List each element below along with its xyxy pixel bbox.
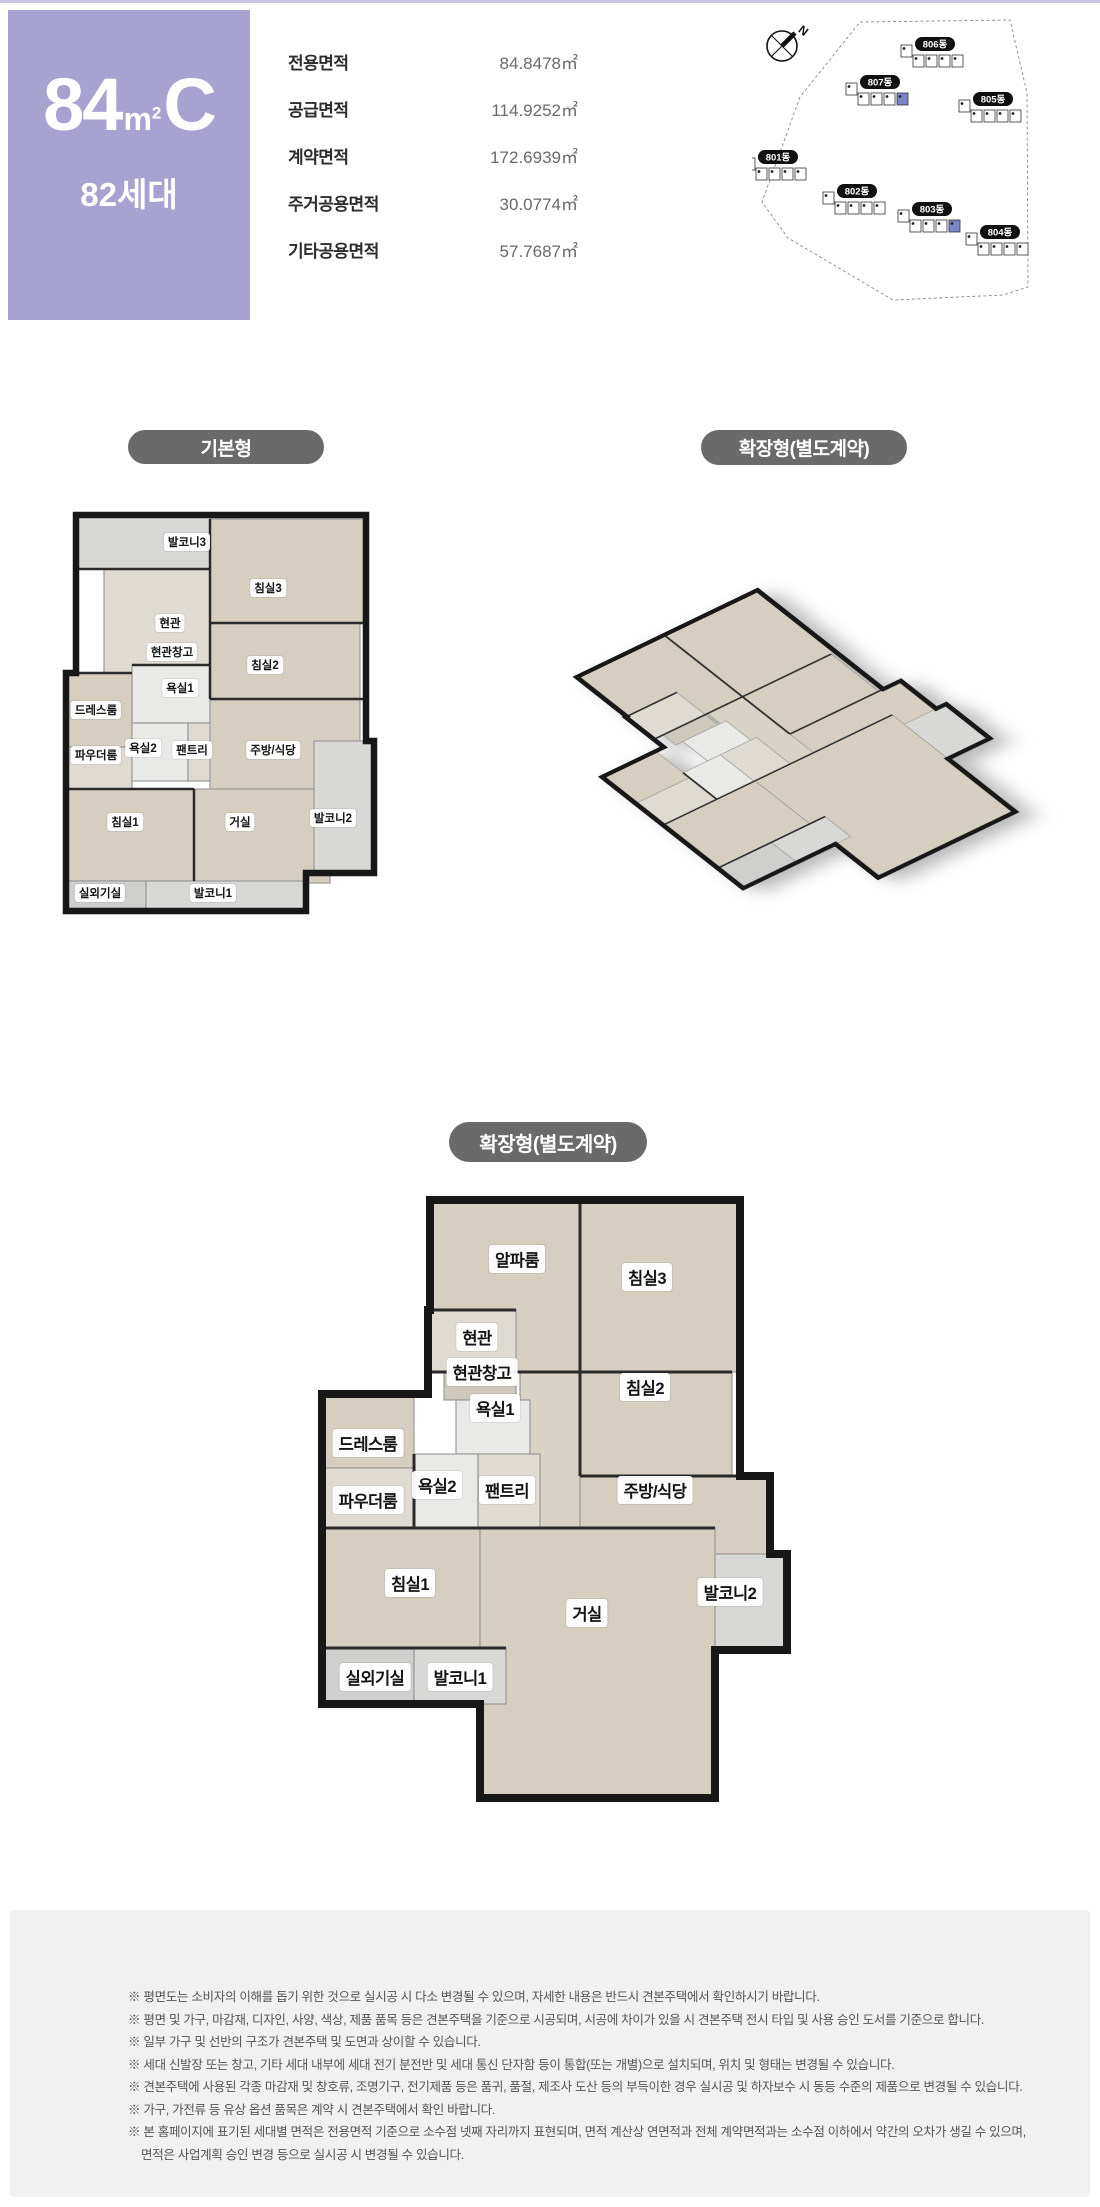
- note-line: ※ 평면 및 가구, 마감재, 디자인, 사양, 색상, 제품 품목 등은 견본…: [128, 2009, 1050, 2032]
- room-label: 욕실2: [412, 1471, 462, 1499]
- room-label: 주방/식당: [618, 1476, 693, 1504]
- area-value: 84.8478㎡: [500, 49, 578, 74]
- svg-text:802동: 802동: [845, 187, 870, 198]
- site-boundary: [762, 20, 1028, 300]
- area-row: 주거공용면적 30.0774㎡: [288, 187, 578, 217]
- room-label: 주방/식당: [246, 741, 300, 759]
- area-row: 계약면적 172.6939㎡: [288, 140, 578, 170]
- room-label: 드레스룸: [71, 701, 121, 719]
- area-value: 172.6939㎡: [490, 143, 578, 168]
- badge-extended-type-2: 확장형(별도계약): [449, 1122, 647, 1162]
- room-label: 실외기실: [340, 1663, 411, 1691]
- room-label: 침실3: [622, 1263, 672, 1291]
- room-label: 현관창고: [147, 643, 197, 661]
- note-line: ※ 세대 신발장 또는 창고, 기타 세대 내부에 세대 전기 분전반 및 세대…: [128, 2054, 1050, 2077]
- badge-extended-type: 확장형(별도계약): [701, 430, 907, 465]
- room-label: 발코니1: [190, 884, 236, 902]
- room-label: 침실1: [385, 1569, 435, 1597]
- area-value: 30.0774㎡: [500, 190, 578, 215]
- svg-text:806동: 806동: [923, 40, 948, 51]
- note-line: ※ 견본주택에 사용된 각종 마감재 및 창호류, 조명기구, 전기제품 등은 …: [128, 2076, 1050, 2099]
- room-label: 발코니1: [428, 1663, 493, 1691]
- room-label: 실외기실: [75, 884, 125, 902]
- households-count: 82세대: [80, 168, 177, 216]
- area-row: 공급면적 114.9252㎡: [288, 93, 578, 123]
- floorplan-extended-3d: [498, 462, 1073, 1037]
- svg-text:801동: 801동: [766, 153, 791, 164]
- room-label: 발코니3: [164, 533, 210, 551]
- area-row: 전용면적 84.8478㎡: [288, 46, 578, 76]
- room-label: 발코니2: [698, 1578, 763, 1606]
- note-line: 면적은 사업계획 승인 변경 등으로 실시공 시 변경될 수 있습니다.: [128, 2144, 1050, 2167]
- site-map: N 801동802동803동804동805동806동807동: [752, 12, 1092, 312]
- room-label: 팬트리: [172, 741, 212, 759]
- north-label: N: [796, 22, 811, 38]
- unit-type-code: 84 m2 C: [43, 68, 215, 142]
- svg-text:807동: 807동: [868, 78, 893, 89]
- floorplan-basic: 발코니3침실3현관현관창고침실2욕실1드레스룸욕실2팬트리파우더룸주방/식당침실…: [60, 505, 380, 915]
- compass-icon: N: [767, 22, 811, 61]
- room-label: 침실1: [107, 813, 143, 831]
- room-label: 현관: [155, 614, 184, 632]
- svg-text:804동: 804동: [988, 228, 1013, 239]
- unit-suffix: C: [163, 68, 214, 142]
- footer-notes: ※ 평면도는 소비자의 이해를 돕기 위한 것으로 실시공 시 다소 변경될 수…: [10, 1910, 1090, 2197]
- room-label: 발코니2: [310, 809, 356, 827]
- area-label: 공급면적: [288, 96, 349, 121]
- note-line: ※ 본 홈페이지에 표기된 세대별 면적은 전용면적 기준으로 소수점 넷째 자…: [128, 2121, 1050, 2144]
- area-value: 57.7687㎡: [500, 237, 578, 262]
- room-label: 팬트리: [479, 1476, 535, 1504]
- room-label: 알파룸: [489, 1245, 545, 1273]
- area-label: 전용면적: [288, 49, 349, 74]
- badge-basic-type: 기본형: [128, 430, 324, 464]
- room-label: 파우더룸: [71, 746, 121, 764]
- area-row: 기타공용면적 57.7687㎡: [288, 234, 578, 264]
- room-label: 파우더룸: [333, 1486, 404, 1514]
- area-value: 114.9252㎡: [491, 96, 578, 121]
- note-line: ※ 평면도는 소비자의 이해를 돕기 위한 것으로 실시공 시 다소 변경될 수…: [128, 1986, 1050, 2009]
- room-label: 드레스룸: [333, 1429, 404, 1457]
- room-label: 거실: [225, 813, 254, 831]
- unit-size: 84: [43, 68, 121, 142]
- area-label: 기타공용면적: [288, 237, 379, 262]
- top-accent-line: [0, 0, 1100, 3]
- area-table: 전용면적 84.8478㎡ 공급면적 114.9252㎡ 계약면적 172.69…: [288, 46, 578, 281]
- unit-sqm: m2: [123, 103, 161, 135]
- svg-text:805동: 805동: [981, 95, 1006, 106]
- room-label: 욕실1: [470, 1394, 520, 1422]
- room-label: 침실2: [247, 656, 283, 674]
- room-label: 욕실2: [125, 739, 161, 757]
- room-label: 욕실1: [162, 679, 198, 697]
- room-label: 침실3: [250, 579, 286, 597]
- area-label: 주거공용면적: [288, 190, 379, 215]
- note-line: ※ 가구, 가전류 등 유상 옵션 품목은 계약 시 견본주택에서 확인 바랍니…: [128, 2099, 1050, 2122]
- area-label: 계약면적: [288, 143, 349, 168]
- room-label: 현관: [456, 1323, 497, 1351]
- floorplan-extended: 알파룸침실3현관현관창고욕실1침실2드레스룸욕실2팬트리파우더룸주방/식당침실1…: [310, 1192, 800, 1807]
- room-label: 거실: [566, 1599, 607, 1627]
- svg-text:803동: 803동: [920, 205, 945, 216]
- unit-type-box: 84 m2 C 82세대: [8, 10, 250, 320]
- room-label: 현관창고: [447, 1358, 518, 1386]
- note-line: ※ 일부 가구 및 선반의 구조가 견본주택 및 도면과 상이할 수 있습니다.: [128, 2031, 1050, 2054]
- room-label: 침실2: [620, 1373, 670, 1401]
- floorplan-extended-3d-drawing: [503, 570, 1069, 928]
- page: 84 m2 C 82세대 전용면적 84.8478㎡ 공급면적 114.9252…: [0, 0, 1100, 2207]
